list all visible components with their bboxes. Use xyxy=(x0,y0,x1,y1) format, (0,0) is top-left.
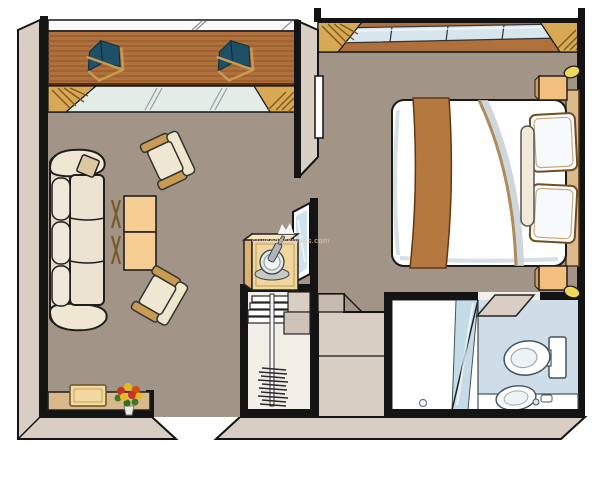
partition-lower xyxy=(310,198,318,294)
flower xyxy=(124,383,132,391)
flower xyxy=(136,393,143,400)
bathroom-wall-top-left xyxy=(384,292,478,300)
sofa-seat xyxy=(70,175,104,305)
table-top xyxy=(124,196,156,232)
flower xyxy=(128,391,136,399)
flower xyxy=(120,393,128,401)
sofa-back-cushion xyxy=(52,266,70,306)
nightstand-bottom xyxy=(539,266,567,290)
table-top xyxy=(124,232,156,270)
bathroom xyxy=(384,292,585,417)
outer-wall-bottom-right xyxy=(216,417,585,439)
cabinet-top xyxy=(244,234,298,240)
bed-pillow-bottom xyxy=(530,184,578,243)
pillow-inner xyxy=(534,188,574,239)
closet-wall-left xyxy=(240,284,248,417)
leaf xyxy=(132,399,139,406)
pillow-inner xyxy=(534,117,574,168)
service-chase xyxy=(318,294,386,417)
faucet xyxy=(533,399,539,405)
wall-post-left xyxy=(314,8,321,22)
vase xyxy=(124,406,134,415)
bedroom-window-band xyxy=(318,22,583,52)
floor-plan: cruisedeckplans.com xyxy=(0,0,600,478)
cabinet-side xyxy=(244,234,252,290)
sofa-back-cushion xyxy=(52,222,70,264)
floor-plan-drawing xyxy=(0,0,600,478)
minibar-cabinet xyxy=(244,234,298,290)
bed-area xyxy=(392,64,581,300)
balcony-railing xyxy=(48,20,298,31)
bed-bolster xyxy=(521,126,534,226)
closet-wall-right xyxy=(310,284,318,417)
closet xyxy=(240,284,318,417)
sofa-back-cushion xyxy=(52,178,70,220)
wall-left xyxy=(40,16,48,417)
nightstand-top xyxy=(539,76,567,100)
bathroom-wall-bottom xyxy=(384,409,585,417)
closet-drawers-upper xyxy=(288,292,310,312)
wall-top-bedroom xyxy=(318,18,578,23)
closet-wall-bottom xyxy=(240,409,318,417)
sofa xyxy=(50,150,107,331)
bathroom-wall-left xyxy=(384,292,392,417)
bed-pillow-top xyxy=(530,113,578,172)
desk-box xyxy=(70,385,106,406)
chase-step xyxy=(318,294,344,312)
bed-runner xyxy=(410,98,451,268)
closet-drawers-lower xyxy=(284,312,310,334)
balcony xyxy=(48,20,298,112)
balcony-deck xyxy=(48,31,298,85)
sofa-armrest-bottom xyxy=(50,304,107,331)
soap-dish xyxy=(541,395,552,402)
bedroom-door xyxy=(315,76,323,138)
